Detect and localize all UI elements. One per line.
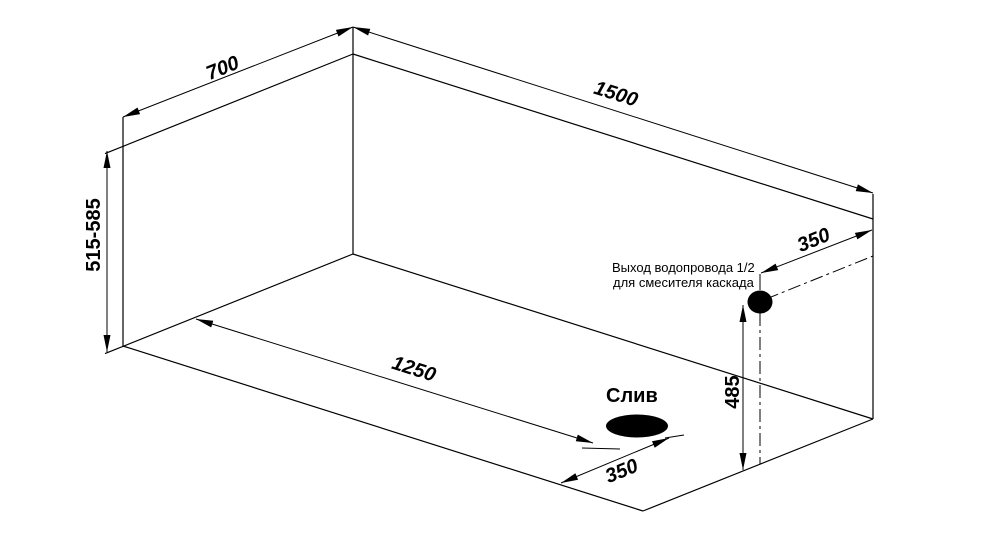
dimension-text-350-outlet: 350 bbox=[794, 224, 833, 257]
bottom-front-left-edge bbox=[123, 346, 643, 511]
centerlines bbox=[760, 256, 873, 464]
technical-drawing-page: 700 1500 515-585 1250 bbox=[0, 0, 1000, 553]
bottom-back-left-edge bbox=[105, 254, 353, 354]
drain-hole bbox=[606, 415, 668, 438]
arrowhead bbox=[740, 305, 747, 322]
arrowhead bbox=[561, 473, 578, 483]
tank-isometric-drawing: 700 1500 515-585 1250 bbox=[0, 0, 1000, 553]
dimension-line bbox=[353, 27, 873, 193]
arrowhead bbox=[104, 151, 111, 168]
drain-label: Слив bbox=[606, 385, 658, 407]
dimension-height: 515-585 bbox=[83, 151, 111, 352]
arrowhead bbox=[123, 108, 140, 118]
arrowhead bbox=[856, 184, 873, 193]
dimension-outlet-height: 485 bbox=[722, 305, 747, 470]
dimension-text-1500: 1500 bbox=[591, 77, 640, 111]
arrowhead bbox=[761, 264, 778, 273]
outlet-note-line1: Выход водопровода 1/2 bbox=[612, 260, 755, 275]
outlet-note: Выход водопровода 1/2 для смесителя каск… bbox=[612, 260, 755, 290]
dimension-text-700: 700 bbox=[203, 52, 242, 85]
arrowhead bbox=[104, 335, 111, 352]
dimension-top-width: 700 bbox=[123, 27, 353, 117]
top-right-rim-edge bbox=[353, 54, 873, 219]
arrowhead bbox=[652, 438, 669, 448]
tank-wireframe bbox=[105, 27, 873, 511]
extension-line bbox=[582, 448, 620, 449]
dimension-line bbox=[196, 319, 593, 443]
arrowhead bbox=[336, 27, 353, 37]
arrowhead bbox=[740, 453, 747, 470]
dimension-drain-length-offset: 1250 bbox=[196, 319, 620, 449]
dimension-text-height: 515-585 bbox=[83, 198, 105, 271]
dimension-text-350-drain: 350 bbox=[602, 455, 641, 488]
dimension-drain-width-offset: 350 bbox=[561, 435, 684, 488]
outlet-axis-centerline bbox=[766, 256, 873, 299]
dimension-text-485: 485 bbox=[722, 375, 744, 408]
outlet-hole bbox=[748, 291, 773, 314]
arrowhead bbox=[196, 319, 213, 327]
dimension-outlet-offset: 350 bbox=[760, 224, 872, 290]
arrowhead bbox=[576, 435, 593, 443]
arrowhead bbox=[353, 27, 370, 36]
bottom-front-right-edge bbox=[643, 419, 873, 511]
arrowhead bbox=[855, 230, 872, 239]
outlet-note-line2: для смесителя каскада bbox=[613, 275, 755, 290]
extension-line bbox=[665, 435, 684, 438]
dimension-top-length: 1500 bbox=[353, 27, 873, 193]
